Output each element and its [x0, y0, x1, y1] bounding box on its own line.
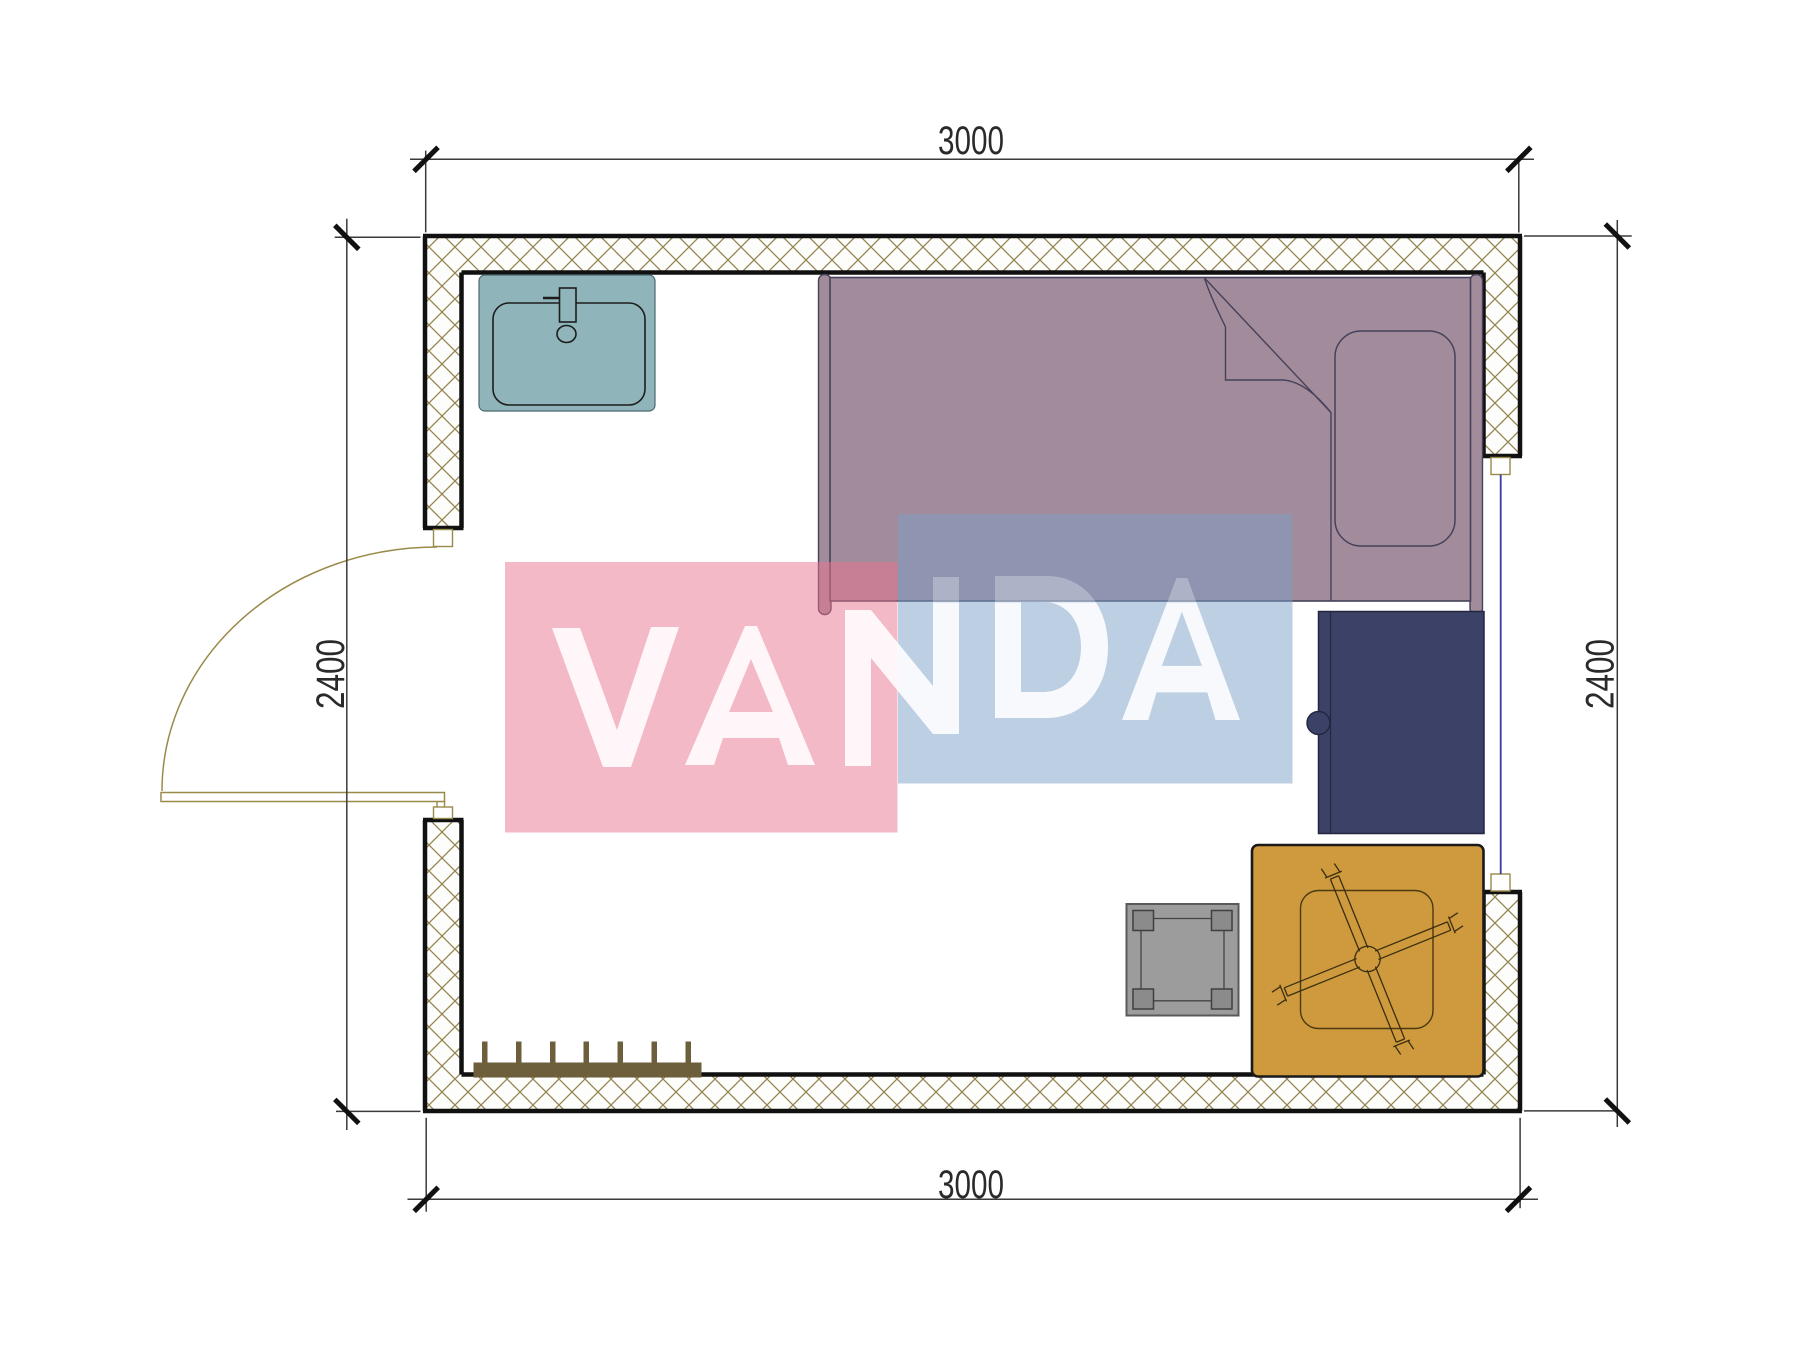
svg-text:3000: 3000	[938, 119, 1004, 163]
svg-text:3000: 3000	[938, 1163, 1004, 1207]
svg-text:2400: 2400	[1579, 639, 1623, 709]
svg-text:2400: 2400	[309, 639, 353, 709]
